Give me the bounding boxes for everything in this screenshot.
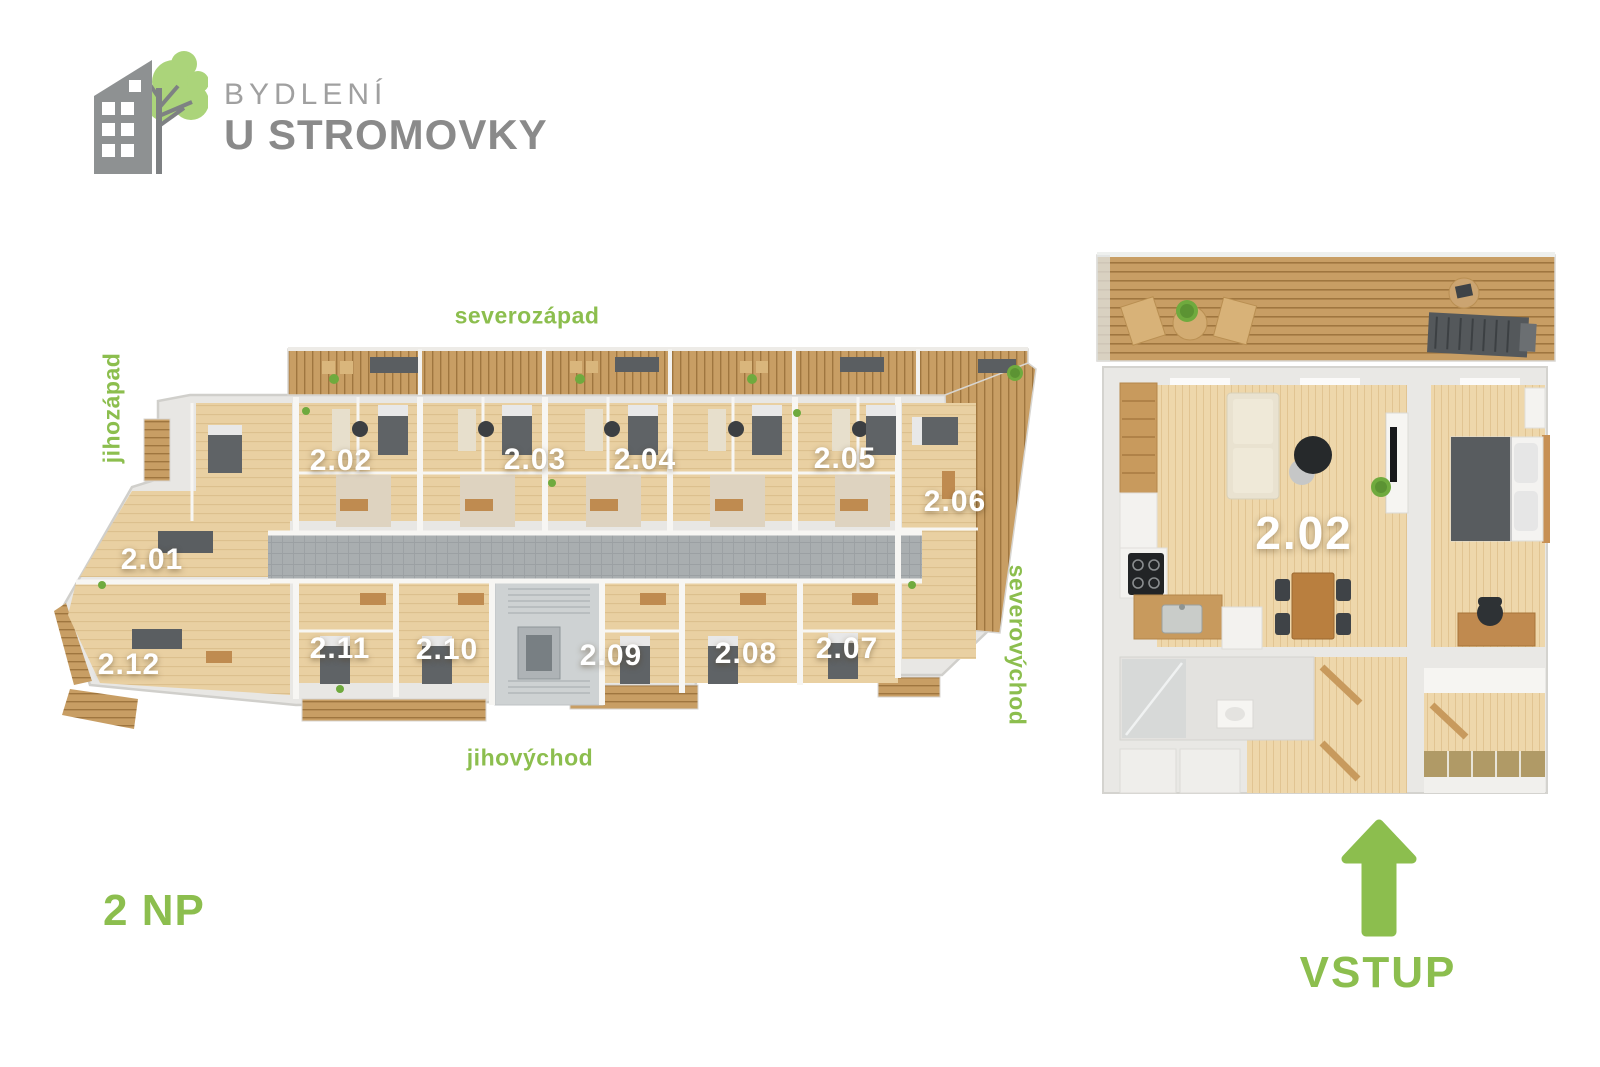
- unit-label-2.09: 2.09: [580, 639, 642, 673]
- unit-label-2.12: 2.12: [98, 648, 160, 682]
- logo-line2: U STROMOVKY: [224, 111, 548, 159]
- unit-label-2.06: 2.06: [924, 485, 986, 519]
- unit-label-2.05: 2.05: [814, 442, 876, 476]
- logo-line1: BYDLENÍ: [224, 78, 548, 111]
- unit-label-2.07: 2.07: [816, 632, 878, 666]
- entrance-arrow-icon: [1340, 818, 1418, 940]
- entrance-label: VSTUP: [1300, 948, 1457, 998]
- direction-label-southwest: jihozápad: [99, 353, 126, 464]
- main-floor-plan: [40, 333, 1040, 733]
- floor-label: 2 NP: [103, 886, 205, 936]
- logo-text: BYDLENÍ U STROMOVKY: [224, 78, 548, 159]
- direction-label-southeast: jihovýchod: [467, 745, 593, 772]
- unit-label-2.11: 2.11: [310, 632, 371, 666]
- unit-label-2.10: 2.10: [416, 633, 478, 667]
- unit-label-2.01: 2.01: [121, 543, 183, 577]
- detail-terrace: [1097, 252, 1555, 361]
- direction-label-northwest: severozápad: [455, 303, 600, 330]
- detail-unit-label: 2.02: [1255, 506, 1353, 560]
- unit-label-2.03: 2.03: [504, 443, 566, 477]
- logo-building-tree-icon: [88, 50, 208, 174]
- unit-label-2.04: 2.04: [614, 443, 676, 477]
- direction-label-northeast: severovýchod: [1004, 565, 1031, 726]
- logo: BYDLENÍ U STROMOVKY: [88, 50, 548, 174]
- page: BYDLENÍ U STROMOVKY: [0, 0, 1600, 1067]
- detail-apartment: [1103, 367, 1550, 793]
- unit-label-2.08: 2.08: [715, 637, 777, 671]
- unit-label-2.02: 2.02: [310, 444, 372, 478]
